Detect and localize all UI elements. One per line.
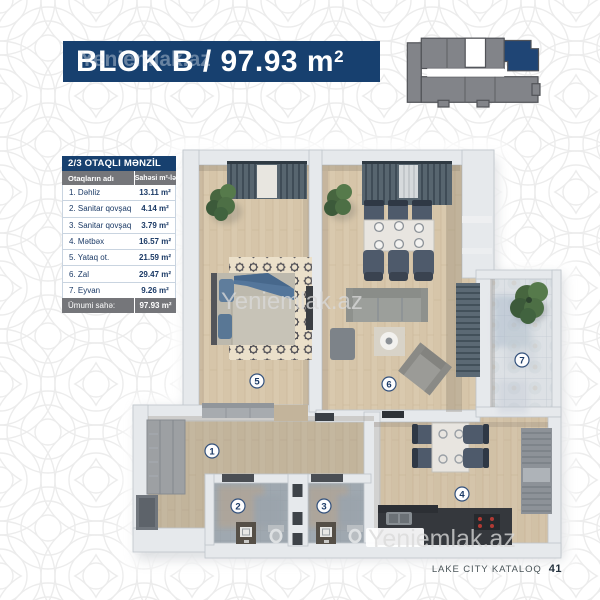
- svg-text:2: 2: [235, 502, 240, 513]
- svg-text:6: 6: [386, 380, 391, 391]
- svg-text:5: 5: [254, 377, 260, 388]
- svg-text:4: 4: [459, 490, 465, 501]
- svg-text:1: 1: [209, 447, 215, 458]
- svg-text:3: 3: [321, 502, 326, 513]
- svg-text:7: 7: [519, 356, 524, 367]
